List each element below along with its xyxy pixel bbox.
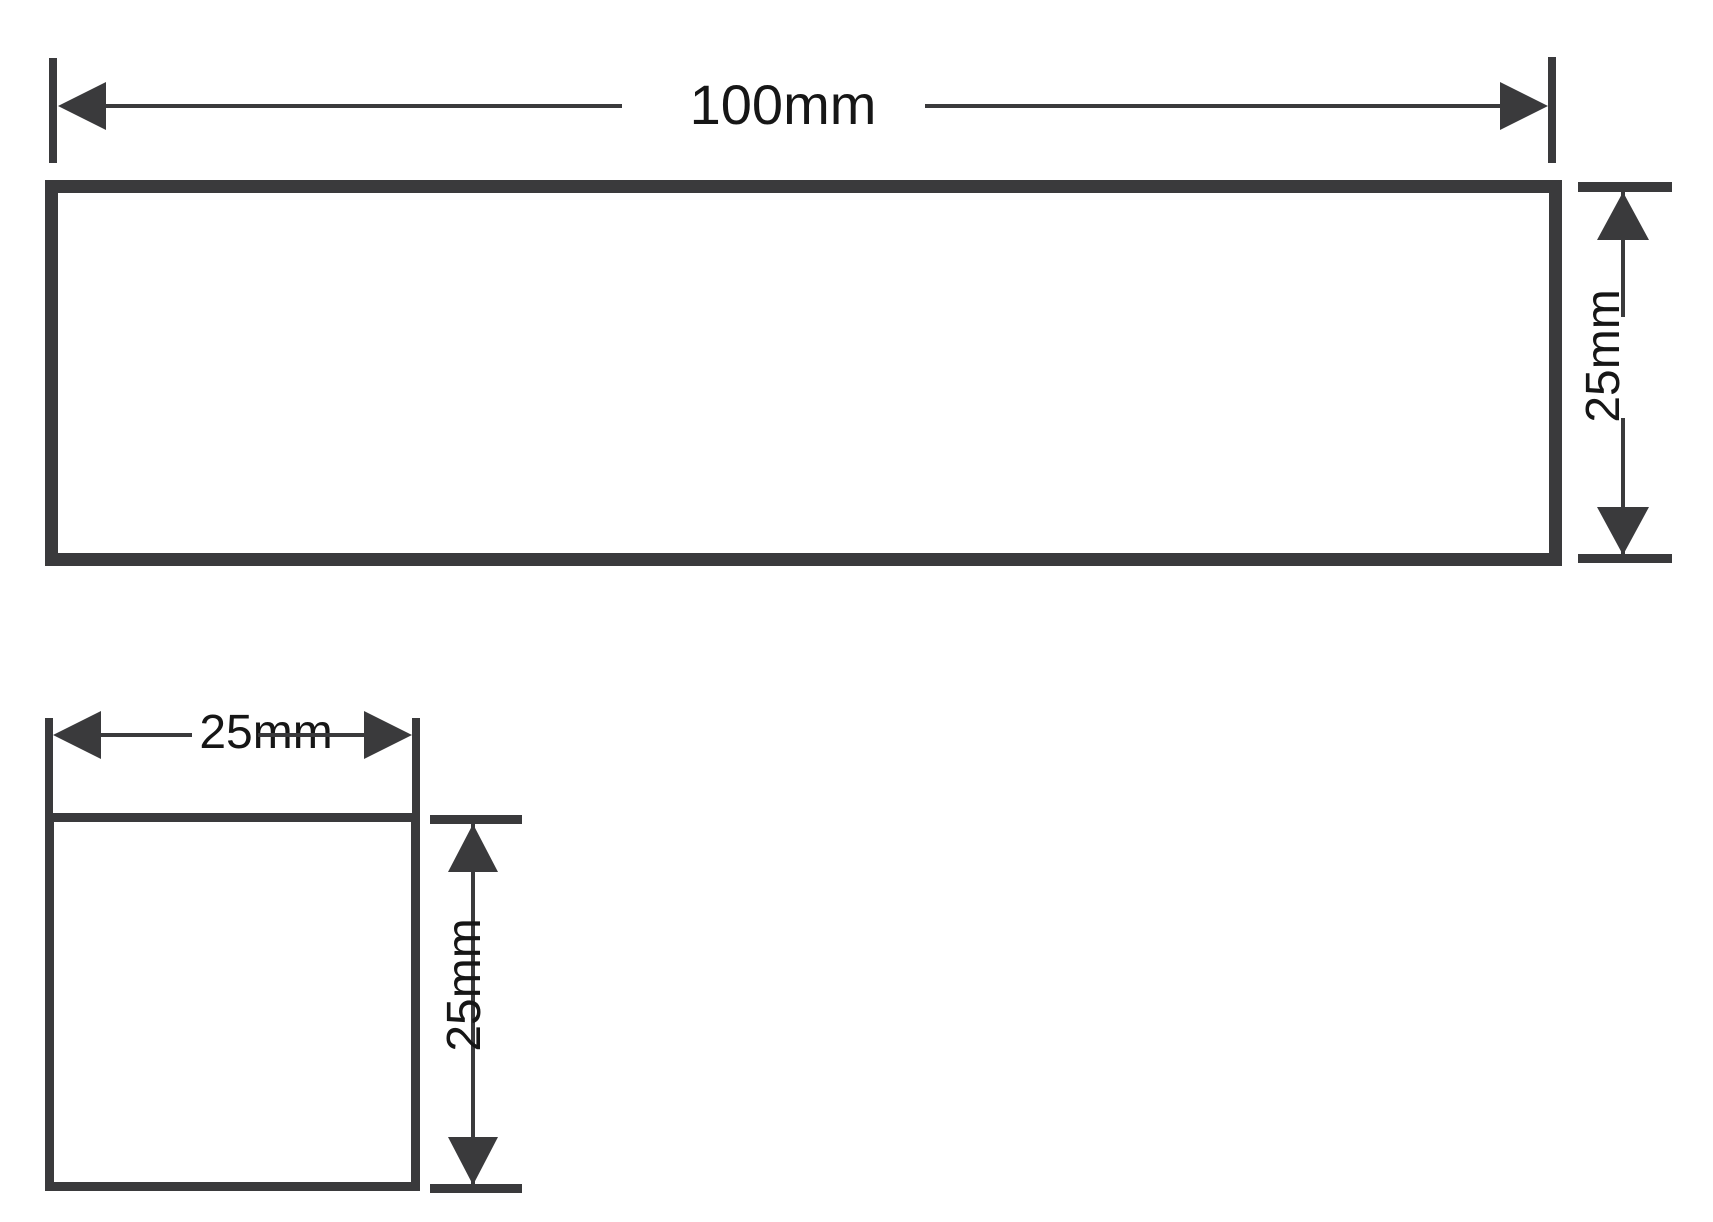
arrowhead-right-icon [364,711,412,759]
rect-height-dimension-label: 25mm [1580,289,1628,422]
arrowhead-down-icon [1597,507,1649,555]
square-width-extension-line-left [45,718,53,813]
arrowhead-down-icon [448,1137,498,1185]
arrowhead-left-icon [58,82,106,130]
rect-width-dimension-label: 100mm [690,77,877,133]
arrowhead-left-icon [53,711,101,759]
drawing-canvas: 100mm 25mm 25mm 25mm [0,0,1713,1222]
rect-height-tick-top [1578,182,1672,192]
rect-width-dimension-line-left-segment [106,104,622,108]
square-width-extension-line-right [412,718,420,813]
small-square [45,813,420,1191]
rect-width-extension-line-right [1548,57,1556,163]
square-height-dimension-label: 25mm [441,918,489,1051]
arrowhead-right-icon [1500,82,1548,130]
big-rectangle [45,180,1562,566]
square-height-tick-top [430,815,522,824]
arrowhead-up-icon [448,824,498,872]
square-width-dimension-line-left-segment [101,733,192,737]
rect-width-extension-line-left [49,58,57,163]
square-width-dimension-line-right-segment [258,733,365,737]
rect-height-tick-bottom [1578,554,1672,563]
rect-width-dimension-line-right-segment [925,104,1500,108]
square-height-tick-bottom [430,1184,522,1193]
